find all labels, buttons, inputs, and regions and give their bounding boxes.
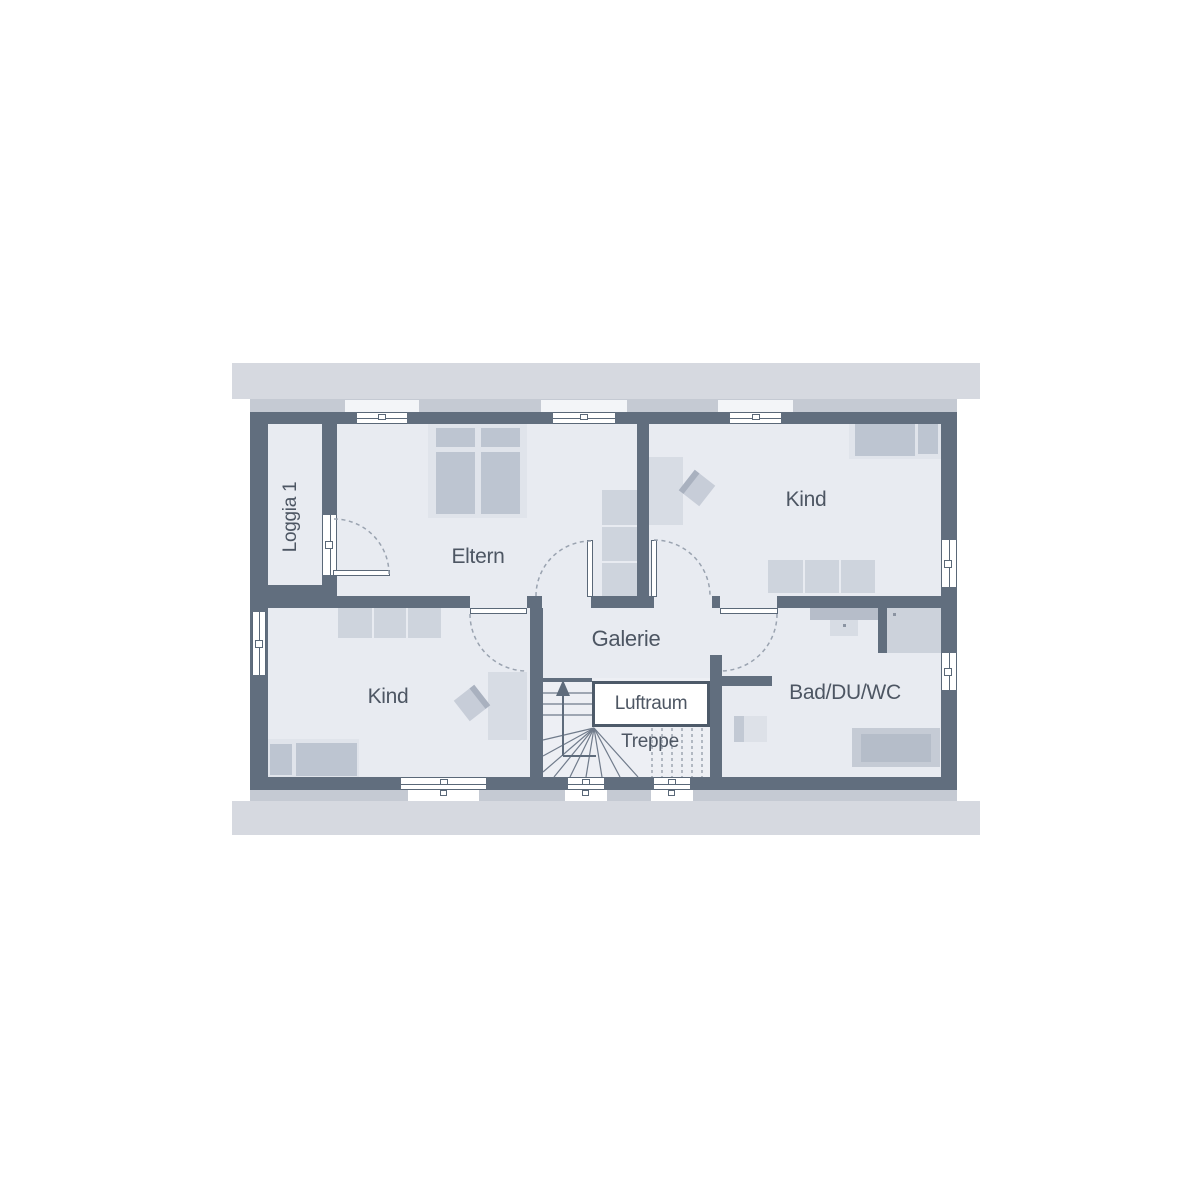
child2-bed-pillow — [270, 744, 292, 775]
shower-drain-icon — [893, 613, 896, 616]
wall-middle-stub1 — [527, 596, 542, 608]
child1-bed-mattress — [855, 422, 915, 456]
wc-cistern — [734, 716, 744, 742]
floorplan-canvas: Luftraum Loggia 1 Eltern Kind Kind Galer… — [0, 0, 1200, 1200]
parents-bed-pillow-left — [436, 428, 475, 447]
window-top-2 — [553, 412, 615, 424]
bathtub-inner — [861, 734, 931, 762]
wc-bowl — [744, 716, 767, 742]
room-label-eltern: Eltern — [451, 545, 504, 569]
wall-stair-left — [530, 608, 543, 777]
door-leaf-bath — [720, 608, 778, 614]
window-sill — [345, 400, 419, 412]
room-label-luftraum: Luftraum — [615, 693, 688, 715]
wall-stair-bath — [710, 655, 722, 777]
window-bottom-3 — [654, 777, 690, 790]
window-top-3 — [730, 412, 781, 424]
window-sill — [565, 790, 607, 801]
roof-band-top — [232, 363, 980, 399]
child1-bed-pillow — [918, 424, 938, 454]
room-label-galerie: Galerie — [592, 626, 661, 652]
window-right-1 — [941, 540, 957, 587]
child2-wardrobe — [338, 605, 441, 638]
child2-desk — [488, 672, 527, 740]
loggia-door-opening — [322, 515, 337, 575]
parents-bed-mattress-left — [436, 452, 475, 514]
door-leaf-eltern — [587, 540, 593, 597]
parents-wardrobe — [602, 490, 637, 597]
window-top-1 — [357, 412, 407, 424]
parents-bed-mattress-right — [481, 452, 520, 514]
child1-wardrobe — [768, 560, 875, 593]
wall-middle-right — [777, 596, 941, 608]
parents-bed-pillow-right — [481, 428, 520, 447]
bath-vanity-counter — [810, 608, 878, 620]
child2-bed-mattress — [296, 743, 357, 776]
room-label-bad: Bad/DU/WC — [789, 681, 901, 705]
wall-shower-stub — [878, 596, 887, 653]
wall-middle-stub2 — [712, 596, 720, 608]
room-label-treppe: Treppe — [621, 731, 679, 753]
luftraum-void: Luftraum — [592, 681, 710, 727]
wall-middle-left — [268, 596, 470, 608]
window-right-2 — [941, 653, 957, 690]
room-label-kind-top: Kind — [786, 488, 827, 512]
child1-desk — [649, 457, 683, 525]
room-label-loggia: Loggia 1 — [280, 482, 302, 553]
wall-eltern-kind-divider — [637, 412, 649, 608]
roof-band-bottom — [232, 801, 980, 835]
bath-washbasin — [830, 620, 858, 636]
door-leaf-child1 — [651, 540, 657, 597]
window-sill — [957, 552, 963, 572]
door-leaf-child2 — [470, 608, 527, 614]
stair-top-edge — [543, 678, 592, 682]
window-sill — [718, 400, 793, 412]
window-sill — [408, 790, 479, 801]
wall-bath-stub — [722, 676, 772, 686]
window-bottom-2 — [568, 777, 604, 790]
door-leaf-loggia — [333, 570, 390, 576]
wall-exterior-right — [941, 412, 957, 790]
washbasin-drain-icon — [843, 624, 846, 627]
window-sill — [651, 790, 693, 801]
window-sill — [541, 400, 627, 412]
room-label-kind-bottom: Kind — [368, 685, 409, 709]
window-bottom-1 — [401, 777, 486, 790]
window-left — [252, 612, 266, 675]
window-sill — [957, 658, 963, 678]
